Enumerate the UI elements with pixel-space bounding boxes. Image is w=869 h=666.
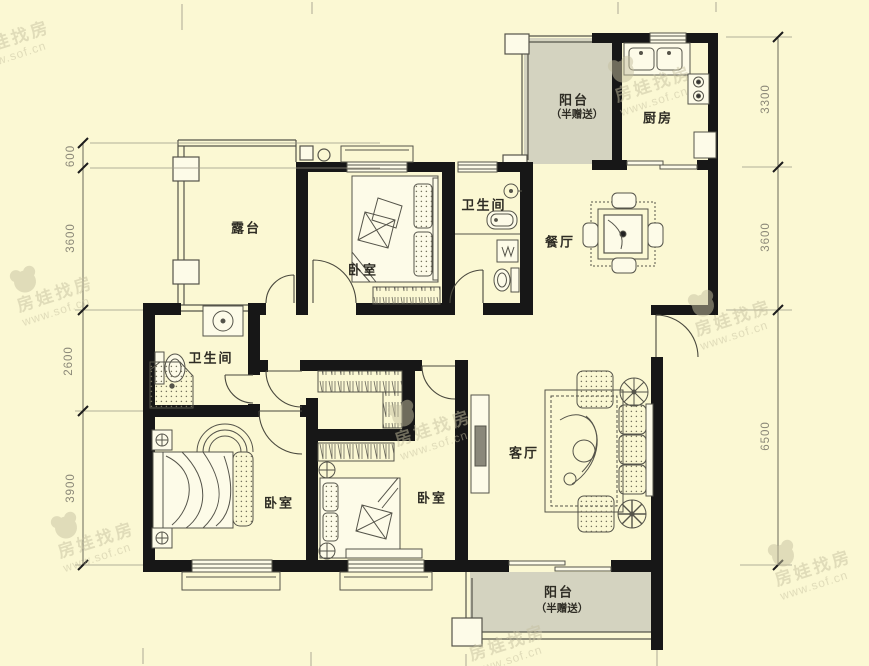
dim-left-2600: 2600 [63, 346, 75, 376]
sink-icon [203, 306, 243, 336]
bed-icon [152, 424, 253, 548]
dim-right-3600: 3600 [760, 222, 772, 252]
room-label-dining: 餐厅 [545, 232, 575, 251]
kitchen-sink-icon [624, 43, 690, 75]
wardrobe-icon [373, 287, 440, 304]
room-label-bedroom-left: 卧室 [264, 493, 294, 512]
room-label-bathroom-top: 卫生间 [461, 195, 506, 214]
window [650, 33, 686, 43]
dim-left-3900: 3900 [65, 473, 77, 503]
sink-icon [504, 184, 522, 198]
wardrobe-icon [383, 392, 402, 428]
door-arc [225, 375, 253, 403]
walls [143, 33, 718, 650]
window [458, 162, 497, 172]
room-label-living: 客厅 [509, 443, 539, 462]
plant-icon [620, 378, 648, 406]
dim-right-3300: 3300 [760, 84, 772, 114]
sliding-door [627, 161, 697, 169]
dim-right-6500: 6500 [760, 421, 772, 451]
door-arc [259, 411, 302, 454]
balcony-fills [470, 38, 651, 632]
room-label-bedroom-mid: 卧室 [417, 488, 447, 507]
dim-left-600: 600 [65, 145, 77, 167]
wardrobe-icon [318, 443, 394, 461]
door-arc [422, 366, 455, 399]
window [340, 560, 432, 590]
wardrobe-icon [318, 371, 402, 392]
door-arc [656, 315, 698, 357]
floorplan-drawing [0, 0, 869, 666]
plant-icon [618, 500, 646, 528]
toilet-icon [494, 268, 519, 292]
room-label-kitchen: 厨房 [643, 108, 673, 127]
dim-left-3600: 3600 [65, 223, 77, 253]
room-label-balcony-bottom: 阳台 [544, 582, 574, 601]
door-arc [266, 371, 302, 407]
furniture [150, 43, 716, 559]
stove-icon [688, 74, 709, 104]
room-label-bathroom-mid: 卫生间 [188, 348, 233, 367]
room-sublabel-balcony-top: （半赠送） [551, 107, 604, 122]
dining-table-icon [583, 193, 663, 273]
floorplan-canvas: 露台 卧室 卫生间 阳台 （半赠送） 厨房 餐厅 卫生间 卧室 卧室 客厅 阳台… [0, 0, 869, 666]
bathtub-icon [487, 211, 517, 229]
window [182, 560, 280, 590]
washing-machine-icon [497, 240, 518, 262]
room-label-terrace: 露台 [231, 218, 261, 237]
bed-icon [319, 462, 422, 559]
room-label-bedroom-top: 卧室 [348, 260, 378, 279]
kitchen-cabinet-icon [694, 132, 716, 158]
room-sublabel-balcony-bottom: （半赠送） [536, 601, 589, 616]
door-arc [266, 275, 294, 303]
shower-icon [150, 362, 193, 408]
sofa-icon [577, 371, 653, 532]
tv-cabinet-icon [471, 395, 489, 493]
sliding-door [509, 561, 611, 571]
